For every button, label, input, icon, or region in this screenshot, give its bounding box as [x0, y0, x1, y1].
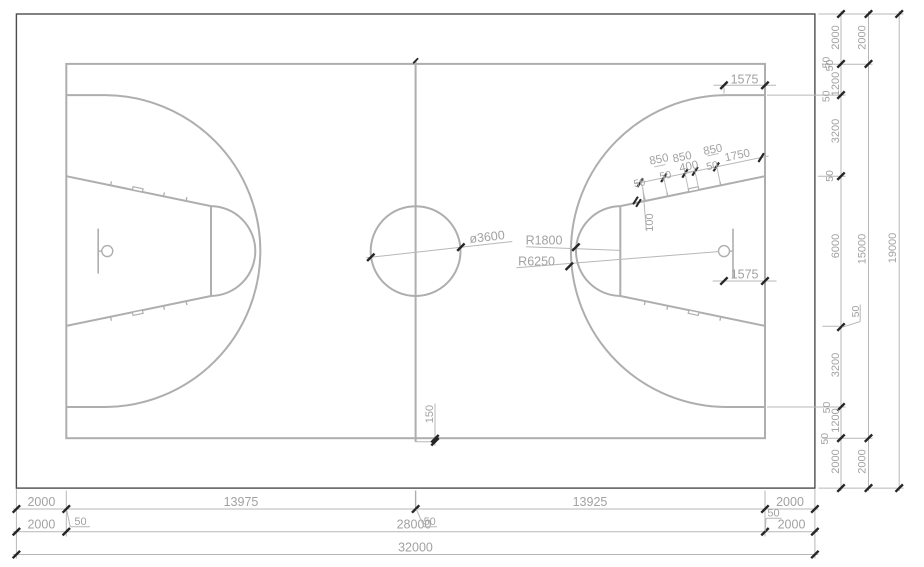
svg-text:13975: 13975	[224, 495, 259, 509]
svg-text:50: 50	[821, 402, 833, 414]
svg-text:150: 150	[424, 405, 436, 423]
svg-text:19000: 19000	[887, 233, 899, 264]
svg-text:2000: 2000	[776, 495, 804, 509]
svg-text:3200: 3200	[830, 119, 842, 143]
svg-text:6000: 6000	[830, 234, 842, 258]
svg-text:50: 50	[821, 90, 833, 102]
svg-text:50: 50	[824, 170, 836, 182]
svg-text:100: 100	[644, 213, 656, 231]
svg-text:1575: 1575	[731, 73, 759, 87]
svg-text:50: 50	[850, 306, 862, 318]
svg-text:2000: 2000	[830, 449, 842, 473]
svg-text:2000: 2000	[778, 518, 806, 532]
svg-text:R1800: R1800	[526, 234, 563, 248]
svg-text:2000: 2000	[856, 449, 868, 473]
svg-text:2000: 2000	[27, 518, 55, 532]
svg-text:15000: 15000	[856, 234, 868, 265]
svg-text:50: 50	[824, 60, 836, 72]
svg-text:2000: 2000	[27, 495, 55, 509]
svg-text:13925: 13925	[573, 495, 608, 509]
svg-text:50: 50	[424, 516, 436, 528]
svg-text:3200: 3200	[830, 353, 842, 377]
svg-text:50: 50	[819, 433, 831, 445]
svg-text:50: 50	[74, 516, 86, 528]
svg-text:2000: 2000	[856, 25, 868, 49]
svg-text:2000: 2000	[830, 25, 842, 49]
svg-text:50: 50	[767, 507, 779, 519]
svg-text:1575: 1575	[731, 268, 759, 282]
svg-text:32000: 32000	[398, 540, 433, 554]
svg-text:R6250: R6250	[518, 255, 555, 269]
